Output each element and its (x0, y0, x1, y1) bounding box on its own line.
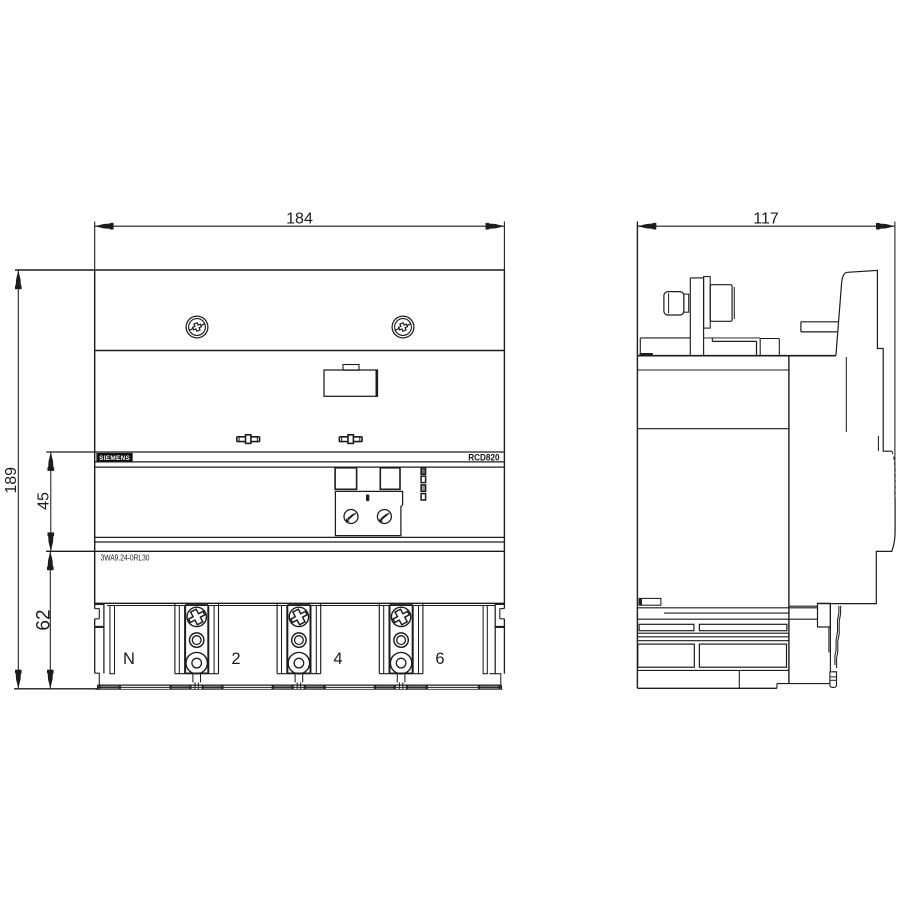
svg-text:RCD820: RCD820 (468, 452, 499, 463)
svg-text:45: 45 (35, 492, 52, 510)
svg-text:2: 2 (231, 650, 240, 668)
svg-text:62: 62 (34, 609, 55, 630)
svg-text:3WA9.24-0RL30: 3WA9.24-0RL30 (101, 553, 150, 563)
svg-text:SIEMENS: SIEMENS (99, 455, 130, 462)
svg-text:4: 4 (333, 650, 342, 668)
svg-text:N: N (123, 650, 135, 668)
svg-text:189: 189 (3, 467, 20, 494)
svg-text:184: 184 (286, 210, 313, 227)
svg-text:6: 6 (435, 650, 444, 668)
svg-text:117: 117 (753, 210, 779, 227)
